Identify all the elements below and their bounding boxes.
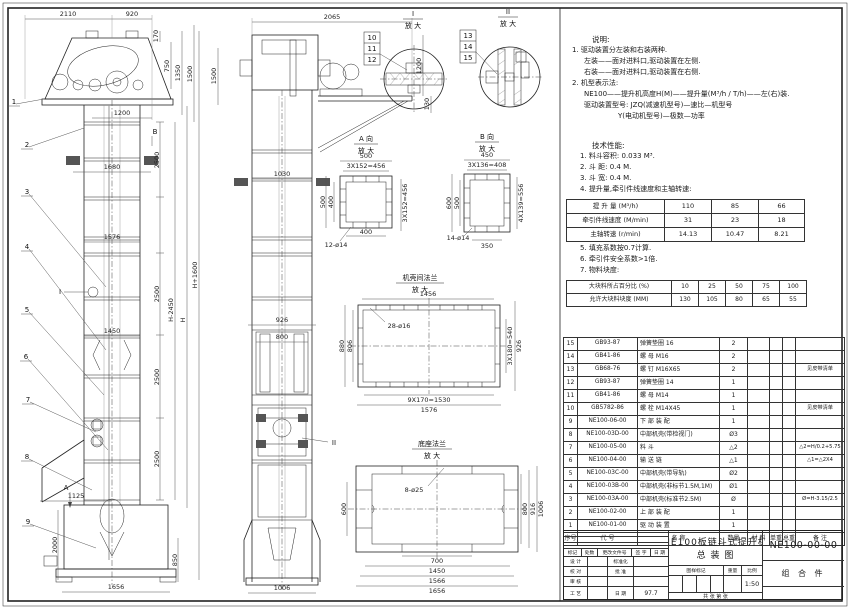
capacity-table: 提 升 量 (M³/h) 110 85 66 牵引件线速度 (M/min) 31… [566,199,805,242]
table-row: 7NE100-05-00料 斗△2△2=H/0.2+5.75 [564,442,845,455]
dim-9x170: 9X170=1530 [408,396,451,404]
rpm-value: 10.47 [712,228,759,242]
note-line: NE100——提升机高度H(M)——提升量(M³/h / T/h)——左(右)装… [584,89,840,100]
rpm-row-label: 主轴转速 (r/min) [567,228,665,242]
spec-item: 5. 填充系数按0.7计算. [580,243,840,254]
note-line: 左装——面对进料口,驱动装置在左侧. [584,56,840,67]
dim-750: 750 [163,60,171,72]
callout-9: 9 [26,518,30,526]
specs-heading: 技术性能: [592,140,840,151]
front-elevation-view [42,31,176,585]
drawing-number: NE100-00-00 [763,531,844,561]
dim-700: 700 [431,557,443,565]
detail-I-fangda: 放 大 [405,21,421,30]
side-view-dimensions: 2065 1500 1200 130 1030 926 800 1006 II [210,13,431,593]
wall-bracket [234,178,248,186]
dim-14-o14: 14-ø14 [447,234,470,242]
dim-2065: 2065 [324,13,341,21]
table-row: 13GB68-76螺 钉 M16X652见皮带清单 [564,364,845,377]
callout-1: 1 [12,98,16,106]
dim-2500: 2500 [153,286,161,303]
table-row: 11GB41-86螺 母 M141 [564,390,845,403]
lump-pct: 75 [753,281,780,294]
table-row: 10GB5782-86螺 栓 M14X451见皮带清单 [564,403,845,416]
dim-350: 350 [481,242,493,250]
dim-2500: 2500 [153,451,161,468]
dim-806: 806 [346,340,354,352]
dim-800: 800 [521,503,529,515]
detail-I-label: I [59,288,61,296]
lump-size: 130 [672,294,699,307]
detail-II-fangda: 放 大 [500,19,516,28]
dim-500: 500 [360,152,372,160]
dim-3x152: 3X152=456 [401,184,409,223]
detail-I-marker [88,287,98,297]
dim-880: 880 [338,340,346,352]
wall-bracket [316,178,330,186]
lump-pct: 50 [726,281,753,294]
table-row: 8NE100-03D-00中部机壳(带检视门)Ø3 [564,429,845,442]
spec-item: 3. 斗 宽: 0.4 M. [580,173,840,184]
callout-14: 14 [464,43,473,51]
dim-916: 916 [529,503,537,515]
dim-8-o25: 8-ø25 [405,486,424,494]
capacity-value: 110 [665,200,712,214]
callout-3: 3 [25,188,29,196]
dim-1450: 1450 [104,327,121,335]
dim-1450: 1450 [429,567,446,575]
capacity-value: 66 [759,200,805,214]
detail-II-label: II [332,439,336,447]
lump-pct: 10 [672,281,699,294]
note-line: Y(电动机型号)—极数—功率 [618,111,840,122]
dim-2110: 2110 [60,10,77,18]
casing-flange-detail: 机壳间法兰 放 大 1456 28-ø16 880 806 3X180=540 … [338,273,523,414]
specs-block-2: 5. 填充系数按0.7计算. 6. 牵引件安全系数>1倍. 7. 物料块度: [580,243,840,276]
bom-table: 15GB93-87弹簧垫圈 162 14GB41-86螺 母 M162 13GB… [563,337,845,546]
dim-130: 130 [423,98,431,110]
spec-item: 1. 料斗容积: 0.033 M³. [580,151,840,162]
detail-I-view: I 放 大 10 11 12 [364,10,448,113]
side-elevation-view [234,35,412,590]
spec-item: 6. 牵引件安全系数>1倍. [580,254,840,265]
speed-value: 31 [665,214,712,228]
scale-value: 1:50 [742,576,763,593]
stamp-weight-header: 重量 [724,566,742,576]
sheet-count: 共 张 第 张 [669,593,763,599]
wall-bracket [66,156,80,165]
lump-pct-label: 大块料所占百分比 (%) [567,281,672,294]
detail-II-view: II 放 大 13 14 15 [460,8,542,107]
table-row: 14GB41-86螺 母 M162 [564,351,845,364]
sig-approve: 批 准 [608,567,634,577]
view-B-title: B 向 [480,132,494,141]
sig-check: 校 对 [564,567,588,577]
speed-row-label: 牵引件线速度 (M/min) [567,214,665,228]
callout-4: 4 [25,243,30,251]
spec-item: 7. 物料块度: [580,265,840,276]
dim-500: 500 [319,196,327,208]
drawing-title-line1: NE100板链斗式提升机 [669,535,763,548]
detail-I-title: I [412,10,414,18]
dim-2000: 2000 [51,537,59,554]
dim-3x152: 3X152=456 [347,162,386,170]
dim-400: 400 [360,228,372,236]
rev-hdr: 签 字 [632,549,651,557]
dim-12-o14: 12-ø14 [325,241,348,249]
dim-1680: 1680 [104,163,121,171]
rev-hdr: 日 期 [651,549,669,557]
drawing-number-text: NE100-00-00 [770,540,838,551]
callout-10: 10 [368,34,377,42]
dim-2500: 2500 [153,369,161,386]
capacity-value: 85 [712,200,759,214]
dim-H-2450: H-2450 [167,298,175,322]
rpm-value: 14.13 [665,228,712,242]
part-type: 组 合 件 [763,561,844,587]
dim-800: 800 [276,333,288,341]
spec-item: 4. 提升量,牵引件线速度和主轴转速: [580,184,840,195]
notes-block: 说明: 1. 驱动装置分左装和右装两种. 左装——面对进料口,驱动装置在左侧. … [572,34,840,122]
dim-926: 926 [515,340,523,352]
drawing-title: NE100板链斗式提升机 总 装 图 [669,531,763,566]
date-value: 97.7 [634,587,669,599]
lump-pct: 25 [699,281,726,294]
lump-size-label: 允许大块料块度 (MM) [567,294,672,307]
dim-1200: 1200 [114,109,131,117]
table-row: 4NE100-03B-00中部机壳(非标节1.5M,1M)Ø1 [564,481,845,494]
engineering-drawing-sheet: { "sheet": { "title_line1": "NE100板链斗式提升… [0,0,850,609]
dim-1500: 1500 [210,68,218,85]
table-row: 3NE100-03A-00中部机壳(标准节2.5M)ØØ=H-3.15/2.5 [564,494,845,507]
rev-hdr: 处数 [582,549,598,557]
dim-850: 850 [171,554,179,566]
base-flange-fangda: 放 大 [424,451,440,460]
table-row: 6NE100-04-00输 送 链△1△1=△2X4 [564,455,845,468]
table-row: 9NE100-06-00下 部 装 配1 [564,416,845,429]
dim-920: 920 [126,10,138,18]
lump-size: 80 [726,294,753,307]
specs-block: 技术性能: 1. 料斗容积: 0.033 M³. 2. 斗 距: 0.4 M. … [580,140,840,195]
dim-1456: 1456 [420,290,437,298]
speed-value: 23 [712,214,759,228]
dim-170: 170 [152,30,160,42]
dim-H+1600: H+1600 [191,262,199,289]
dim-28-o16: 28-ø16 [388,322,411,330]
callout-11: 11 [368,45,377,53]
lump-size: 55 [780,294,807,307]
dim-1006: 1006 [537,501,545,518]
dim-2500: 2500 [153,152,161,169]
dim-600: 600 [445,197,453,209]
dim-1576: 1576 [104,233,121,241]
sig-design: 设 计 [564,557,588,567]
sig-date: 日 期 [608,587,634,599]
callout-5: 5 [25,306,29,314]
notes-heading: 说明: [592,34,840,45]
dim-400: 400 [327,196,335,208]
sig-craft: 工 艺 [564,587,588,599]
section-letter-A: A [64,484,69,492]
title-block: 标记 处数 更改文件号 签 字 日 期 设 计 标准化 校 对 批 准 审 核 … [563,530,843,600]
dim-H: H [179,317,187,322]
section-letter-B: B [153,128,158,136]
sig-audit: 审 核 [564,577,588,587]
dim-500: 500 [453,197,461,209]
sig-std: 标准化 [608,557,634,567]
callout-6: 6 [24,353,29,361]
table-row: 12GB93-87弹簧垫圈 141 [564,377,845,390]
drawing-title-line2: 总 装 图 [697,548,735,561]
dim-3x180: 3X180=540 [506,327,514,366]
rpm-value: 8.21 [759,228,805,242]
rev-hdr: 标记 [564,549,582,557]
stamp-scale-header: 比例 [742,566,763,576]
stamp-mark-header: 图样标记 [669,566,724,576]
callout-12: 12 [368,56,377,64]
speed-value: 18 [759,214,805,228]
spec-item: 2. 斗 距: 0.4 M. [580,162,840,173]
dim-1576: 1576 [421,406,438,414]
detail-II-title: II [506,8,510,16]
table-row: 15GB93-87弹簧垫圈 162 [564,338,845,351]
table-row: 5NE100-03C-00中部机壳(带导轨)Ø2 [564,468,845,481]
dim-1350: 1350 [174,65,182,82]
lump-pct: 100 [780,281,807,294]
callout-7: 7 [26,396,30,404]
view-A-detail: A 向 放 大 500 3X152=456 500 400 3X152=456 … [319,134,409,249]
dim-1500: 1500 [186,66,194,83]
rev-hdr: 更改文件号 [598,549,632,557]
lump-size-table: 大块料所占百分比 (%) 10 25 50 75 100 允许大块料块度 (MM… [566,280,807,307]
note-line: 右装——面对进料口,驱动装置在右侧. [584,67,840,78]
note-line: 1. 驱动装置分左装和右装两种. [572,45,840,56]
dim-926: 926 [276,316,288,324]
lump-size: 65 [753,294,780,307]
dim-1656: 1656 [429,587,446,595]
lump-size: 105 [699,294,726,307]
dim-1566: 1566 [429,577,446,585]
note-line: 驱动装置型号: JZQ(减速机型号)—速比—机型号 [584,100,840,111]
note-line: 2. 机型表示法: [572,78,840,89]
dim-450: 450 [481,151,493,159]
dim-1006: 1006 [274,584,291,592]
dim-1030: 1030 [274,170,291,178]
view-A-title: A 向 [359,134,373,143]
dim-3x136: 3X136=408 [468,161,507,169]
capacity-row-label: 提 升 量 (M³/h) [567,200,665,214]
dim-600: 600 [340,503,348,515]
base-flange-detail: 底座法兰 放 大 8-ø25 600 800 916 1006 700 1450… [340,439,545,595]
dim-4x139: 4X139=556 [517,184,525,223]
front-view-callouts: 1 2 3 4 5 6 7 8 9 B A I [8,98,158,548]
view-B-detail: B 向 放 大 450 3X136=408 600 500 4X139=556 … [445,132,525,250]
callout-15: 15 [464,54,473,62]
callout-2: 2 [25,141,29,149]
table-row: 2NE100-02-00上 部 装 配1 [564,507,845,520]
casing-flange-title: 机壳间法兰 [403,273,438,282]
base-flange-title: 底座法兰 [418,439,446,448]
callout-13: 13 [464,32,473,40]
dim-1656: 1656 [108,583,125,591]
callout-8: 8 [25,453,29,461]
